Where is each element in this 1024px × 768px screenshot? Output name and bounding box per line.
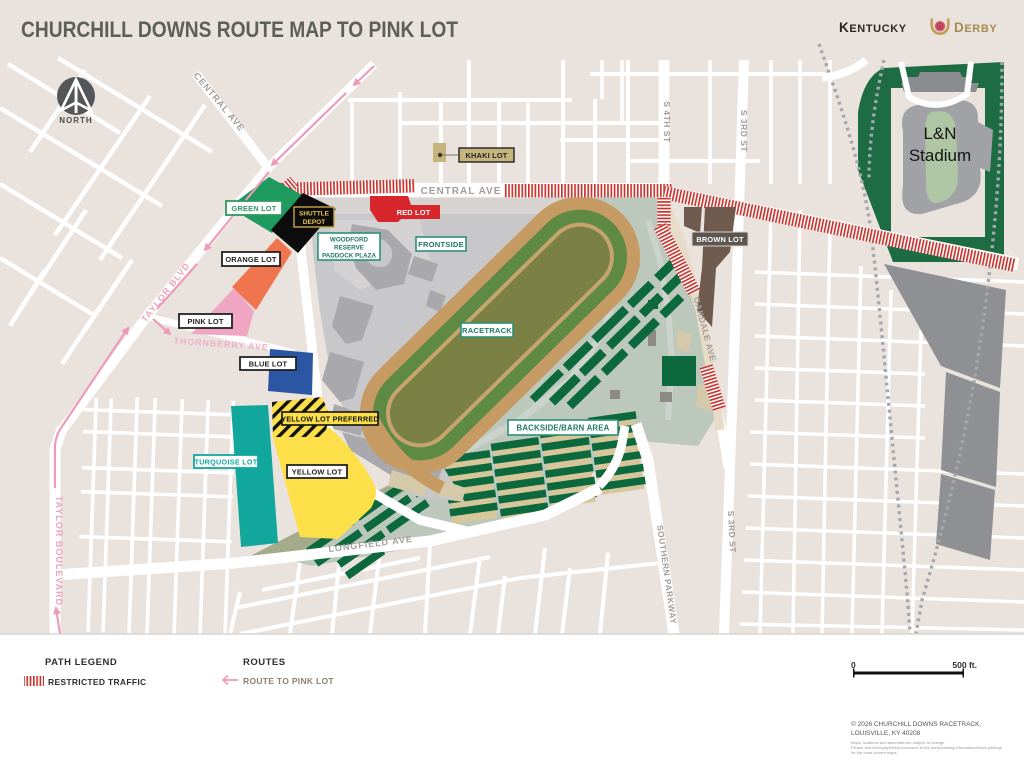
svg-text:ROUTES: ROUTES (243, 657, 286, 668)
svg-text:CHURCHILL DOWNS ROUTE MAP TO P: CHURCHILL DOWNS ROUTE MAP TO PINK LOT (21, 17, 458, 42)
svg-text:KENTUCKY: KENTUCKY (839, 20, 907, 35)
svg-text:NORTH: NORTH (59, 116, 92, 125)
svg-text:TAYLOR BOULEVARD: TAYLOR BOULEVARD (54, 496, 64, 606)
svg-text:PINK LOT: PINK LOT (187, 317, 223, 326)
svg-text:YELLOW LOT: YELLOW LOT (292, 468, 343, 477)
svg-text:DEPOT: DEPOT (303, 219, 325, 226)
svg-text:FRONTSIDE: FRONTSIDE (418, 240, 464, 249)
svg-text:L&N: L&N (923, 124, 956, 143)
svg-text:ORANGE LOT: ORANGE LOT (225, 255, 277, 264)
svg-text:YELLOW LOT PREFERRED: YELLOW LOT PREFERRED (281, 415, 378, 424)
svg-text:RESTRICTED TRAFFIC: RESTRICTED TRAFFIC (48, 677, 146, 687)
svg-text:BLUE LOT: BLUE LOT (249, 360, 288, 369)
svg-text:CENTRAL AVE: CENTRAL AVE (421, 186, 502, 197)
svg-text:PADDOCK PLAZA: PADDOCK PLAZA (322, 253, 377, 260)
svg-text:for the most current maps.: for the most current maps. (851, 750, 898, 755)
svg-text:S 4TH ST: S 4TH ST (662, 101, 672, 143)
svg-text:RACETRACK: RACETRACK (462, 326, 512, 335)
svg-text:Stadium: Stadium (909, 146, 971, 165)
svg-text:BROWN LOT: BROWN LOT (696, 235, 744, 244)
svg-text:DERBY: DERBY (954, 20, 997, 35)
svg-text:GREEN LOT: GREEN LOT (232, 204, 277, 213)
svg-text:RESERVE: RESERVE (334, 245, 364, 252)
svg-text:KHAKI LOT: KHAKI LOT (465, 151, 507, 160)
svg-text:WOODFORD: WOODFORD (330, 237, 369, 244)
svg-text:SHUTTLE: SHUTTLE (299, 211, 330, 218)
svg-text:BACKSIDE/BARN AREA: BACKSIDE/BARN AREA (517, 424, 610, 433)
svg-text:RED LOT: RED LOT (397, 208, 431, 217)
svg-text:TURQUOISE LOT: TURQUOISE LOT (195, 458, 258, 467)
svg-text:LOUISVILLE, KY 40208: LOUISVILLE, KY 40208 (851, 730, 921, 737)
svg-text:PATH LEGEND: PATH LEGEND (45, 657, 117, 668)
svg-text:500 ft.: 500 ft. (952, 660, 977, 670)
svg-text:© 2026 CHURCHILL DOWNS RACETRA: © 2026 CHURCHILL DOWNS RACETRACK, (851, 720, 981, 728)
svg-text:S 3RD ST: S 3RD ST (739, 110, 749, 153)
svg-text:ROUTE TO PINK LOT: ROUTE TO PINK LOT (243, 676, 334, 686)
